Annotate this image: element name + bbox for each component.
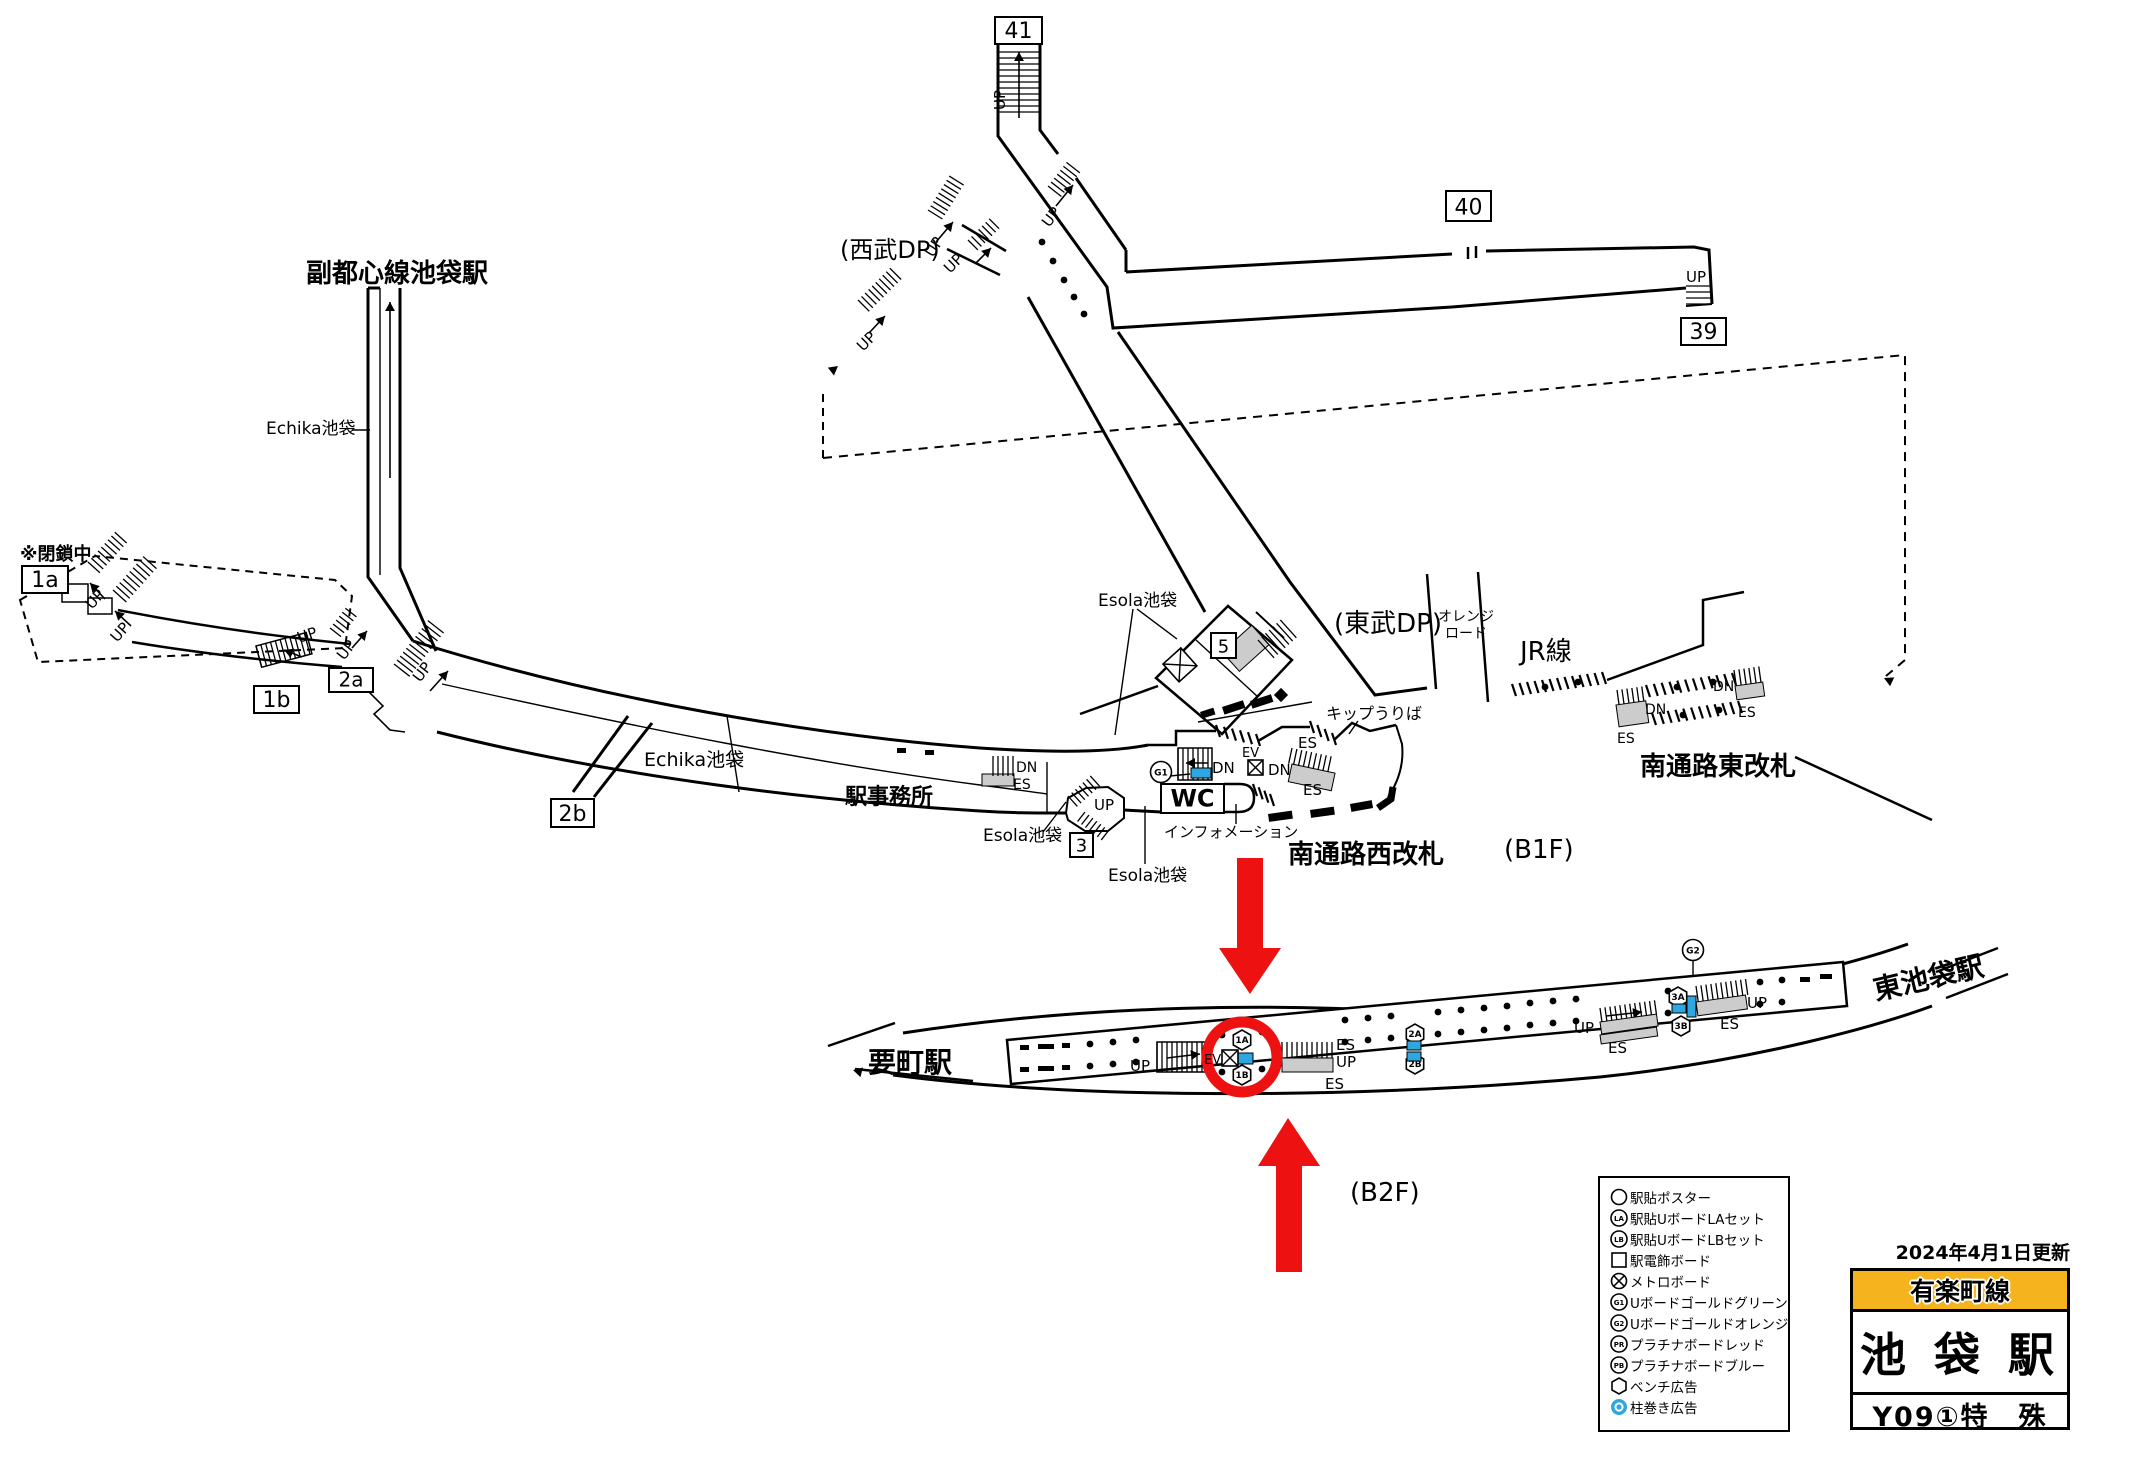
b2f-label: (B2F): [1350, 1178, 1420, 1208]
legend-box: 駅貼ポスターLA駅貼UボードLAセットLB駅貼UボードLBセット駅電飾ボードメト…: [1598, 1176, 1790, 1432]
esola-bottom-label: Esola池袋: [1108, 866, 1187, 886]
esola-3-label: Esola池袋: [983, 826, 1062, 846]
echika-upper-label: Echika池袋: [266, 419, 356, 439]
kippu-uriba-label: キップうりば: [1326, 704, 1422, 723]
legend-label: プラチナボードレッド: [1630, 1334, 1765, 1354]
es-b2f-2: ES: [1325, 1075, 1344, 1093]
legend-label: プラチナボードブルー: [1630, 1355, 1765, 1375]
ekijimusho-label: 駅事務所: [845, 784, 933, 810]
es-west-bottom: ES: [1303, 781, 1322, 799]
up-stray: UP: [853, 328, 880, 355]
legend-item-LB: LB駅貼UボードLBセット: [1608, 1228, 1782, 1249]
bench-ad-label: 3A: [1671, 993, 1684, 1003]
bench-ad-label: 1B: [1235, 1071, 1248, 1081]
esola-5-label: Esola池袋: [1098, 591, 1177, 611]
up-seibu-2: UP: [940, 250, 967, 277]
legend-item-PB: PBプラチナボードブルー: [1608, 1354, 1782, 1375]
tobu-dp-label: (東武DP): [1334, 609, 1442, 639]
svg-text:LA: LA: [1614, 1215, 1624, 1223]
up-b2f-3: UP: [1574, 1019, 1594, 1037]
orange-road-label-2: ロード: [1445, 626, 1487, 642]
corridor-walls: [20, 44, 2008, 1094]
legend-symbol-xcircle-icon: [1608, 1271, 1630, 1291]
legend-symbol-square-icon: [1608, 1250, 1630, 1270]
wc-label: WC: [1170, 785, 1214, 813]
legend-symbol-LA-icon: LA: [1608, 1208, 1630, 1228]
legend-item-hex: ベンチ広告: [1608, 1375, 1782, 1396]
legend-item-G2: G2Uボードゴールドオレンジ: [1608, 1312, 1782, 1333]
es-b2f-1: ES: [1336, 1036, 1355, 1054]
heisachu-label: ※閉鎖中: [20, 543, 92, 565]
legend-symbol-G1-icon: G1: [1608, 1292, 1630, 1312]
es-b2f-right: ES: [1720, 1015, 1739, 1033]
up-1a-1: UP: [82, 586, 109, 613]
svg-text:G2: G2: [1614, 1320, 1625, 1328]
bench-ad-label: 2A: [1408, 1030, 1421, 1040]
echika-mid-label: Echika池袋: [644, 749, 744, 771]
orange-road-label-1: オレンジ: [1438, 609, 1494, 625]
up-39: UP: [1686, 268, 1706, 286]
exit-39-label: 39: [1690, 320, 1718, 345]
legend-label: 駅貼UボードLBセット: [1630, 1229, 1765, 1249]
dn-east-left: DN: [1645, 702, 1666, 718]
svg-text:PB: PB: [1614, 1362, 1624, 1370]
minami-east-gate-label: 南通路東改札: [1640, 751, 1796, 782]
exit-3-label: 3: [1076, 836, 1087, 857]
dn-band: DN: [1016, 760, 1037, 776]
b1f-label: (B1F): [1504, 835, 1574, 865]
information-label: インフォメーション: [1164, 823, 1298, 841]
exit-1b-label: 1b: [263, 688, 291, 713]
up-b2f-mid: UP: [1336, 1053, 1356, 1071]
legend-item-PR: PRプラチナボードレッド: [1608, 1333, 1782, 1354]
stairs-and-escalators: [88, 52, 1765, 1072]
legend-label: 駅電飾ボード: [1630, 1250, 1711, 1270]
up-b2f-left: UP: [1130, 1057, 1150, 1075]
up-2a-big: UP: [409, 659, 436, 686]
legend-symbol-PB-icon: PB: [1608, 1355, 1630, 1375]
up-1a-2: UP: [107, 619, 134, 646]
exit-1a-label: 1a: [31, 568, 58, 593]
bench-ad-label: 1A: [1235, 1036, 1248, 1046]
legend-label: ベンチ広告: [1630, 1376, 1698, 1396]
higashi-ikebukuro-label: 東池袋駅: [1870, 949, 1987, 1006]
legend-label: 駅貼ポスター: [1630, 1187, 1711, 1207]
legend-label: Uボードゴールドオレンジ: [1630, 1313, 1788, 1333]
legend-symbol-LB-icon: LB: [1608, 1229, 1630, 1249]
legend-item-G1: G1Uボードゴールドグリーン: [1608, 1291, 1782, 1312]
station-code: Y09①特 殊: [1853, 1395, 2067, 1433]
ad-board-blue: [1407, 1052, 1421, 1061]
ad-board-blue: [1407, 1041, 1421, 1050]
highlight-arrow-up: [1258, 1118, 1320, 1272]
legend-item-circle: 駅貼ポスター: [1608, 1186, 1782, 1207]
jr-line-label: JR線: [1518, 637, 1572, 667]
legend-item-LA: LA駅貼UボードLAセット: [1608, 1207, 1782, 1228]
dn-west-esc: DN: [1268, 761, 1291, 779]
exit-41-label: 41: [1005, 19, 1033, 44]
elevator-icon: [1248, 760, 1263, 775]
title-block: 有楽町線 池 袋 駅 Y09①特 殊: [1850, 1268, 2070, 1430]
elevator-icon: [1163, 648, 1197, 682]
fukutoshin-label: 副都心線池袋駅: [306, 258, 488, 289]
legend-symbol-circle-icon: [1608, 1187, 1630, 1207]
legend-label: 柱巻き広告: [1630, 1397, 1698, 1417]
legend-item-pillar: 柱巻き広告: [1608, 1396, 1782, 1417]
ev-b2f: EV: [1204, 1053, 1221, 1068]
legend-label: Uボードゴールドグリーン: [1630, 1292, 1788, 1312]
legend-symbol-PR-icon: PR: [1608, 1334, 1630, 1354]
svg-text:G1: G1: [1614, 1299, 1625, 1307]
uboard-gold-label: G2: [1686, 946, 1700, 956]
exit-5-label: 5: [1218, 637, 1229, 658]
dn-west-stair: DN: [1212, 759, 1235, 777]
es-west-top: ES: [1298, 734, 1317, 752]
exit-40-label: 40: [1455, 195, 1483, 220]
bench-ad-label: 2B: [1408, 1060, 1421, 1070]
station-floorplan-svg: 1A1B2A2B3A3BG1G2 副都心線池袋駅※閉鎖中Echika池袋Echi…: [0, 0, 2134, 1468]
up-2a-small: UP: [333, 637, 360, 664]
highlight-arrow-down: [1219, 858, 1281, 994]
legend-symbol-G2-icon: G2: [1608, 1313, 1630, 1333]
ad-board-blue: [1672, 1004, 1686, 1013]
legend-label: 駅貼UボードLAセット: [1630, 1208, 1765, 1228]
ev-west: EV: [1242, 746, 1259, 761]
up-41: UP: [991, 90, 1009, 110]
legend-symbol-pillar-icon: [1608, 1397, 1630, 1417]
up-b2f-right: UP: [1747, 994, 1767, 1012]
legend-symbol-hex-icon: [1608, 1376, 1630, 1396]
svg-text:LB: LB: [1614, 1236, 1624, 1244]
exit-2a-label: 2a: [339, 668, 364, 692]
svg-text:PR: PR: [1614, 1341, 1625, 1349]
line-name-band: 有楽町線: [1853, 1271, 2067, 1312]
up-exit3: UP: [1094, 796, 1114, 814]
exit-2b-label: 2b: [559, 802, 587, 827]
dn-east-right: DN: [1713, 679, 1734, 695]
station-name: 池 袋 駅: [1853, 1312, 2067, 1395]
es-east-left: ES: [1617, 731, 1635, 747]
station-map-page: 1A1B2A2B3A3BG1G2 副都心線池袋駅※閉鎖中Echika池袋Echi…: [0, 0, 2134, 1468]
ad-board-blue: [1237, 1053, 1253, 1064]
legend-label: メトロボード: [1630, 1271, 1711, 1291]
map-labels: 副都心線池袋駅※閉鎖中Echika池袋Echika池袋駅事務所Esola池袋Es…: [20, 17, 1987, 1208]
es-east-right: ES: [1738, 705, 1756, 721]
ad-board-blue: [1191, 768, 1211, 778]
minami-west-gate-label: 南通路西改札: [1288, 839, 1444, 870]
kanamecho-label: 要町駅: [868, 1046, 952, 1079]
legend-item-square: 駅電飾ボード: [1608, 1249, 1782, 1270]
up-1b: UP: [295, 623, 320, 646]
es-band: ES: [1013, 777, 1031, 793]
gate-and-pillar-marks: [86, 52, 1894, 1077]
ad-board-blue: [1687, 996, 1696, 1017]
uboard-gold-label: G1: [1154, 768, 1168, 778]
up-junction: UP: [1038, 204, 1065, 231]
updated-date: 2024年4月1日更新: [1850, 1238, 2070, 1265]
legend-item-xcircle: メトロボード: [1608, 1270, 1782, 1291]
elevator-icon: [1222, 1050, 1238, 1066]
es-b2f-3: ES: [1608, 1039, 1627, 1057]
bench-ad-label: 3B: [1674, 1022, 1687, 1032]
